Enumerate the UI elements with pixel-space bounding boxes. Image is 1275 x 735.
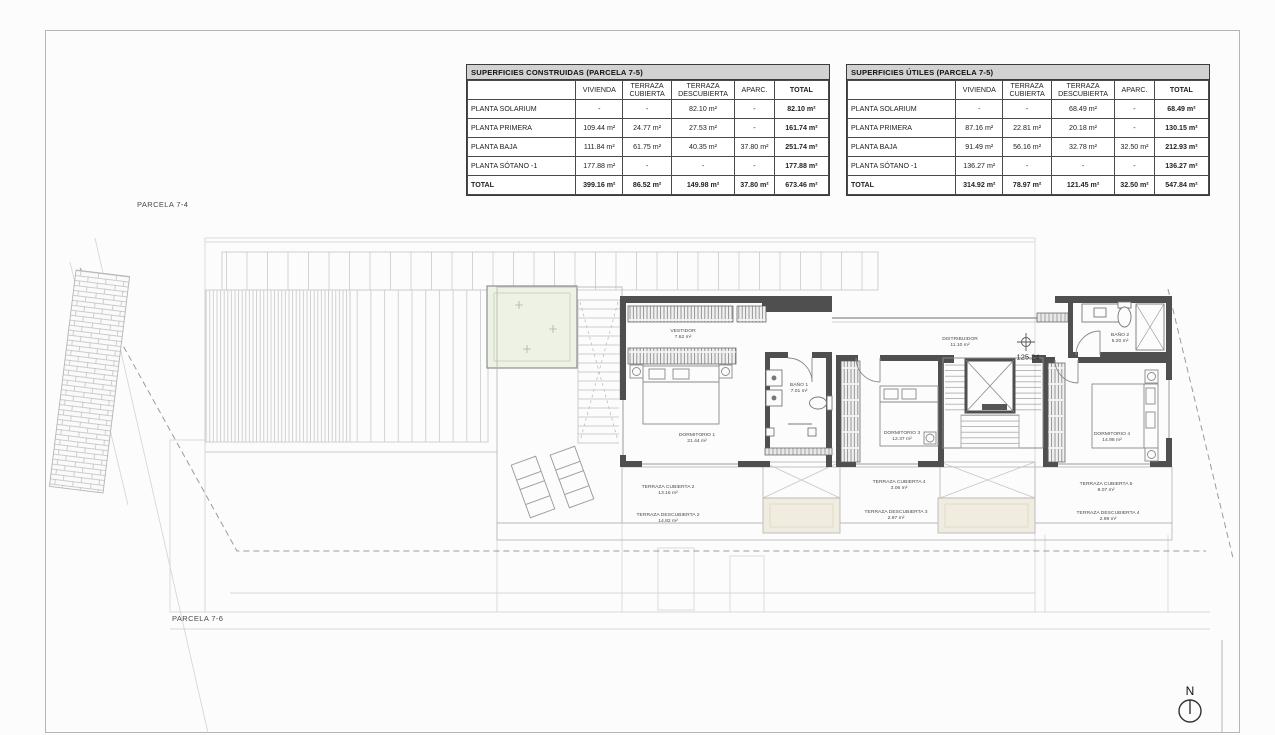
column-header: VIVIENDA xyxy=(576,81,623,100)
table-cell: - xyxy=(1115,119,1155,138)
column-header: APARC. xyxy=(735,81,775,100)
table-cell: - xyxy=(735,100,775,119)
table-cell: 37.80 m² xyxy=(735,138,775,157)
table-body: VIVIENDATERRAZA CUBIERTATERRAZA DESCUBIE… xyxy=(467,80,829,195)
superficies-construidas-table: SUPERFICIES CONSTRUIDAS (PARCELA 7-5) VI… xyxy=(466,64,830,196)
table-cell: - xyxy=(1051,157,1114,176)
room-label-distribuidor: DISTRIBUIDOR11.10 m² xyxy=(942,336,978,349)
table-cell: - xyxy=(576,100,623,119)
column-header xyxy=(468,81,576,100)
table-cell: PLANTA BAJA xyxy=(468,138,576,157)
table-cell: PLANTA SÓTANO -1 xyxy=(848,157,956,176)
table-title: SUPERFICIES CONSTRUIDAS (PARCELA 7-5) xyxy=(467,65,829,80)
north-label: N xyxy=(1186,684,1195,698)
table-cell: - xyxy=(956,100,1003,119)
table-cell: 547.84 m² xyxy=(1154,176,1208,195)
table-cell: 56.16 m² xyxy=(1003,138,1052,157)
table-cell: 78.97 m² xyxy=(1003,176,1052,195)
table-cell: 111.84 m² xyxy=(576,138,623,157)
parcela-7-4-label: PARCELA 7-4 xyxy=(137,200,188,209)
table-cell: 24.77 m² xyxy=(623,119,672,138)
room-label-terraza-cubierta-5: TERRAZA CUBIERTA 58.07 m² xyxy=(1080,481,1133,494)
table-cell: TOTAL xyxy=(848,176,956,195)
table-cell: 32.50 m² xyxy=(1115,138,1155,157)
superficies-utiles-table: SUPERFICIES ÚTILES (PARCELA 7-5) VIVIEND… xyxy=(846,64,1210,196)
column-header xyxy=(848,81,956,100)
table-cell: 399.16 m² xyxy=(576,176,623,195)
table-cell: 68.49 m² xyxy=(1154,100,1208,119)
table-cell: 177.88 m² xyxy=(576,157,623,176)
table-cell: 61.75 m² xyxy=(623,138,672,157)
table-cell: PLANTA SOLARIUM xyxy=(468,100,576,119)
table-cell: TOTAL xyxy=(468,176,576,195)
room-label-dormitorio-3: DORMITORIO 312.37 m² xyxy=(884,430,920,443)
table-cell: 212.93 m² xyxy=(1154,138,1208,157)
table-cell: 82.10 m² xyxy=(671,100,734,119)
column-header: TOTAL xyxy=(1154,81,1208,100)
table-cell: 68.49 m² xyxy=(1051,100,1114,119)
table-cell: 20.18 m² xyxy=(1051,119,1114,138)
column-header: TERRAZA DESCUBIERTA xyxy=(671,81,734,100)
table-cell: - xyxy=(623,100,672,119)
table-cell: 121.45 m² xyxy=(1051,176,1114,195)
table-cell: 177.88 m² xyxy=(774,157,828,176)
beds xyxy=(630,365,1158,461)
table-cell: 251.74 m² xyxy=(774,138,828,157)
table-cell: 314.92 m² xyxy=(956,176,1003,195)
table-cell: PLANTA SOLARIUM xyxy=(848,100,956,119)
table-cell: 32.78 m² xyxy=(1051,138,1114,157)
table-cell: 27.53 m² xyxy=(671,119,734,138)
table-cell: PLANTA SÓTANO -1 xyxy=(468,157,576,176)
table-cell: 40.35 m² xyxy=(671,138,734,157)
table-cell: 109.44 m² xyxy=(576,119,623,138)
table-cell: 86.52 m² xyxy=(623,176,672,195)
column-header: TERRAZA CUBIERTA xyxy=(623,81,672,100)
table-cell: - xyxy=(1115,100,1155,119)
floor-level-value: 125.24 xyxy=(1017,353,1040,362)
table-cell: PLANTA PRIMERA xyxy=(468,119,576,138)
column-header: VIVIENDA xyxy=(956,81,1003,100)
table-cell: 136.27 m² xyxy=(1154,157,1208,176)
table-cell: - xyxy=(623,157,672,176)
plan-sheet: SUPERFICIES CONSTRUIDAS (PARCELA 7-5) VI… xyxy=(0,0,1275,735)
table-cell: 87.16 m² xyxy=(956,119,1003,138)
column-header: TOTAL xyxy=(774,81,828,100)
room-label-terraza-descubierta-4: TERRAZA DESCUBIERTA 42.99 m² xyxy=(1077,510,1140,523)
table-cell: PLANTA BAJA xyxy=(848,138,956,157)
column-header: TERRAZA CUBIERTA xyxy=(1003,81,1052,100)
table-cell: 32.50 m² xyxy=(1115,176,1155,195)
table-cell: 82.10 m² xyxy=(774,100,828,119)
table-cell: 22.81 m² xyxy=(1003,119,1052,138)
areas-table: VIVIENDATERRAZA CUBIERTATERRAZA DESCUBIE… xyxy=(847,80,1209,195)
room-label-bano-2: BAÑO 25.20 m² xyxy=(1111,332,1129,345)
table-title: SUPERFICIES ÚTILES (PARCELA 7-5) xyxy=(847,65,1209,80)
room-label-terraza-cubierta-2: TERRAZA CUBIERTA 213.16 m² xyxy=(642,484,695,497)
room-label-vestidor: VESTIDOR7.62 m² xyxy=(670,328,695,341)
table-cell: 136.27 m² xyxy=(956,157,1003,176)
level-crosshair-icon xyxy=(1017,333,1035,351)
room-label-dormitorio-1: DORMITORIO 121.44 m² xyxy=(679,432,715,445)
table-cell: - xyxy=(671,157,734,176)
table-cell: - xyxy=(735,157,775,176)
exterior-staircase xyxy=(578,300,620,443)
room-label-bano-1: BAÑO 17.01 m² xyxy=(790,382,808,395)
parcela-7-6-label: PARCELA 7-6 xyxy=(172,614,223,623)
table-cell: - xyxy=(1115,157,1155,176)
green-skylight xyxy=(487,286,577,368)
room-label-dormitorio-4: DORMITORIO 414.98 m² xyxy=(1094,431,1130,444)
column-header: TERRAZA DESCUBIERTA xyxy=(1051,81,1114,100)
table-cell: - xyxy=(735,119,775,138)
areas-table: VIVIENDATERRAZA CUBIERTATERRAZA DESCUBIE… xyxy=(467,80,829,195)
table-body: VIVIENDATERRAZA CUBIERTATERRAZA DESCUBIE… xyxy=(847,80,1209,195)
table-cell: 130.15 m² xyxy=(1154,119,1208,138)
stair-elevator-core xyxy=(943,358,1043,448)
column-header: APARC. xyxy=(1115,81,1155,100)
room-label-terraza-descubierta-3: TERRAZA DESCUBIERTA 32.97 m² xyxy=(865,509,928,522)
table-cell: 149.98 m² xyxy=(671,176,734,195)
lounge-chairs xyxy=(511,446,594,518)
table-cell: 161.74 m² xyxy=(774,119,828,138)
table-cell: - xyxy=(1003,100,1052,119)
table-cell: 673.46 m² xyxy=(774,176,828,195)
north-arrow-icon xyxy=(1179,700,1201,722)
table-cell: PLANTA PRIMERA xyxy=(848,119,956,138)
room-label-terraza-cubierta-4: TERRAZA CUBIERTA 43.06 m² xyxy=(873,479,926,492)
table-cell: 37.80 m² xyxy=(735,176,775,195)
table-cell: 91.49 m² xyxy=(956,138,1003,157)
table-cell: - xyxy=(1003,157,1052,176)
room-label-terraza-descubierta-2: TERRAZA DESCUBIERTA 214.82 m² xyxy=(637,512,700,525)
